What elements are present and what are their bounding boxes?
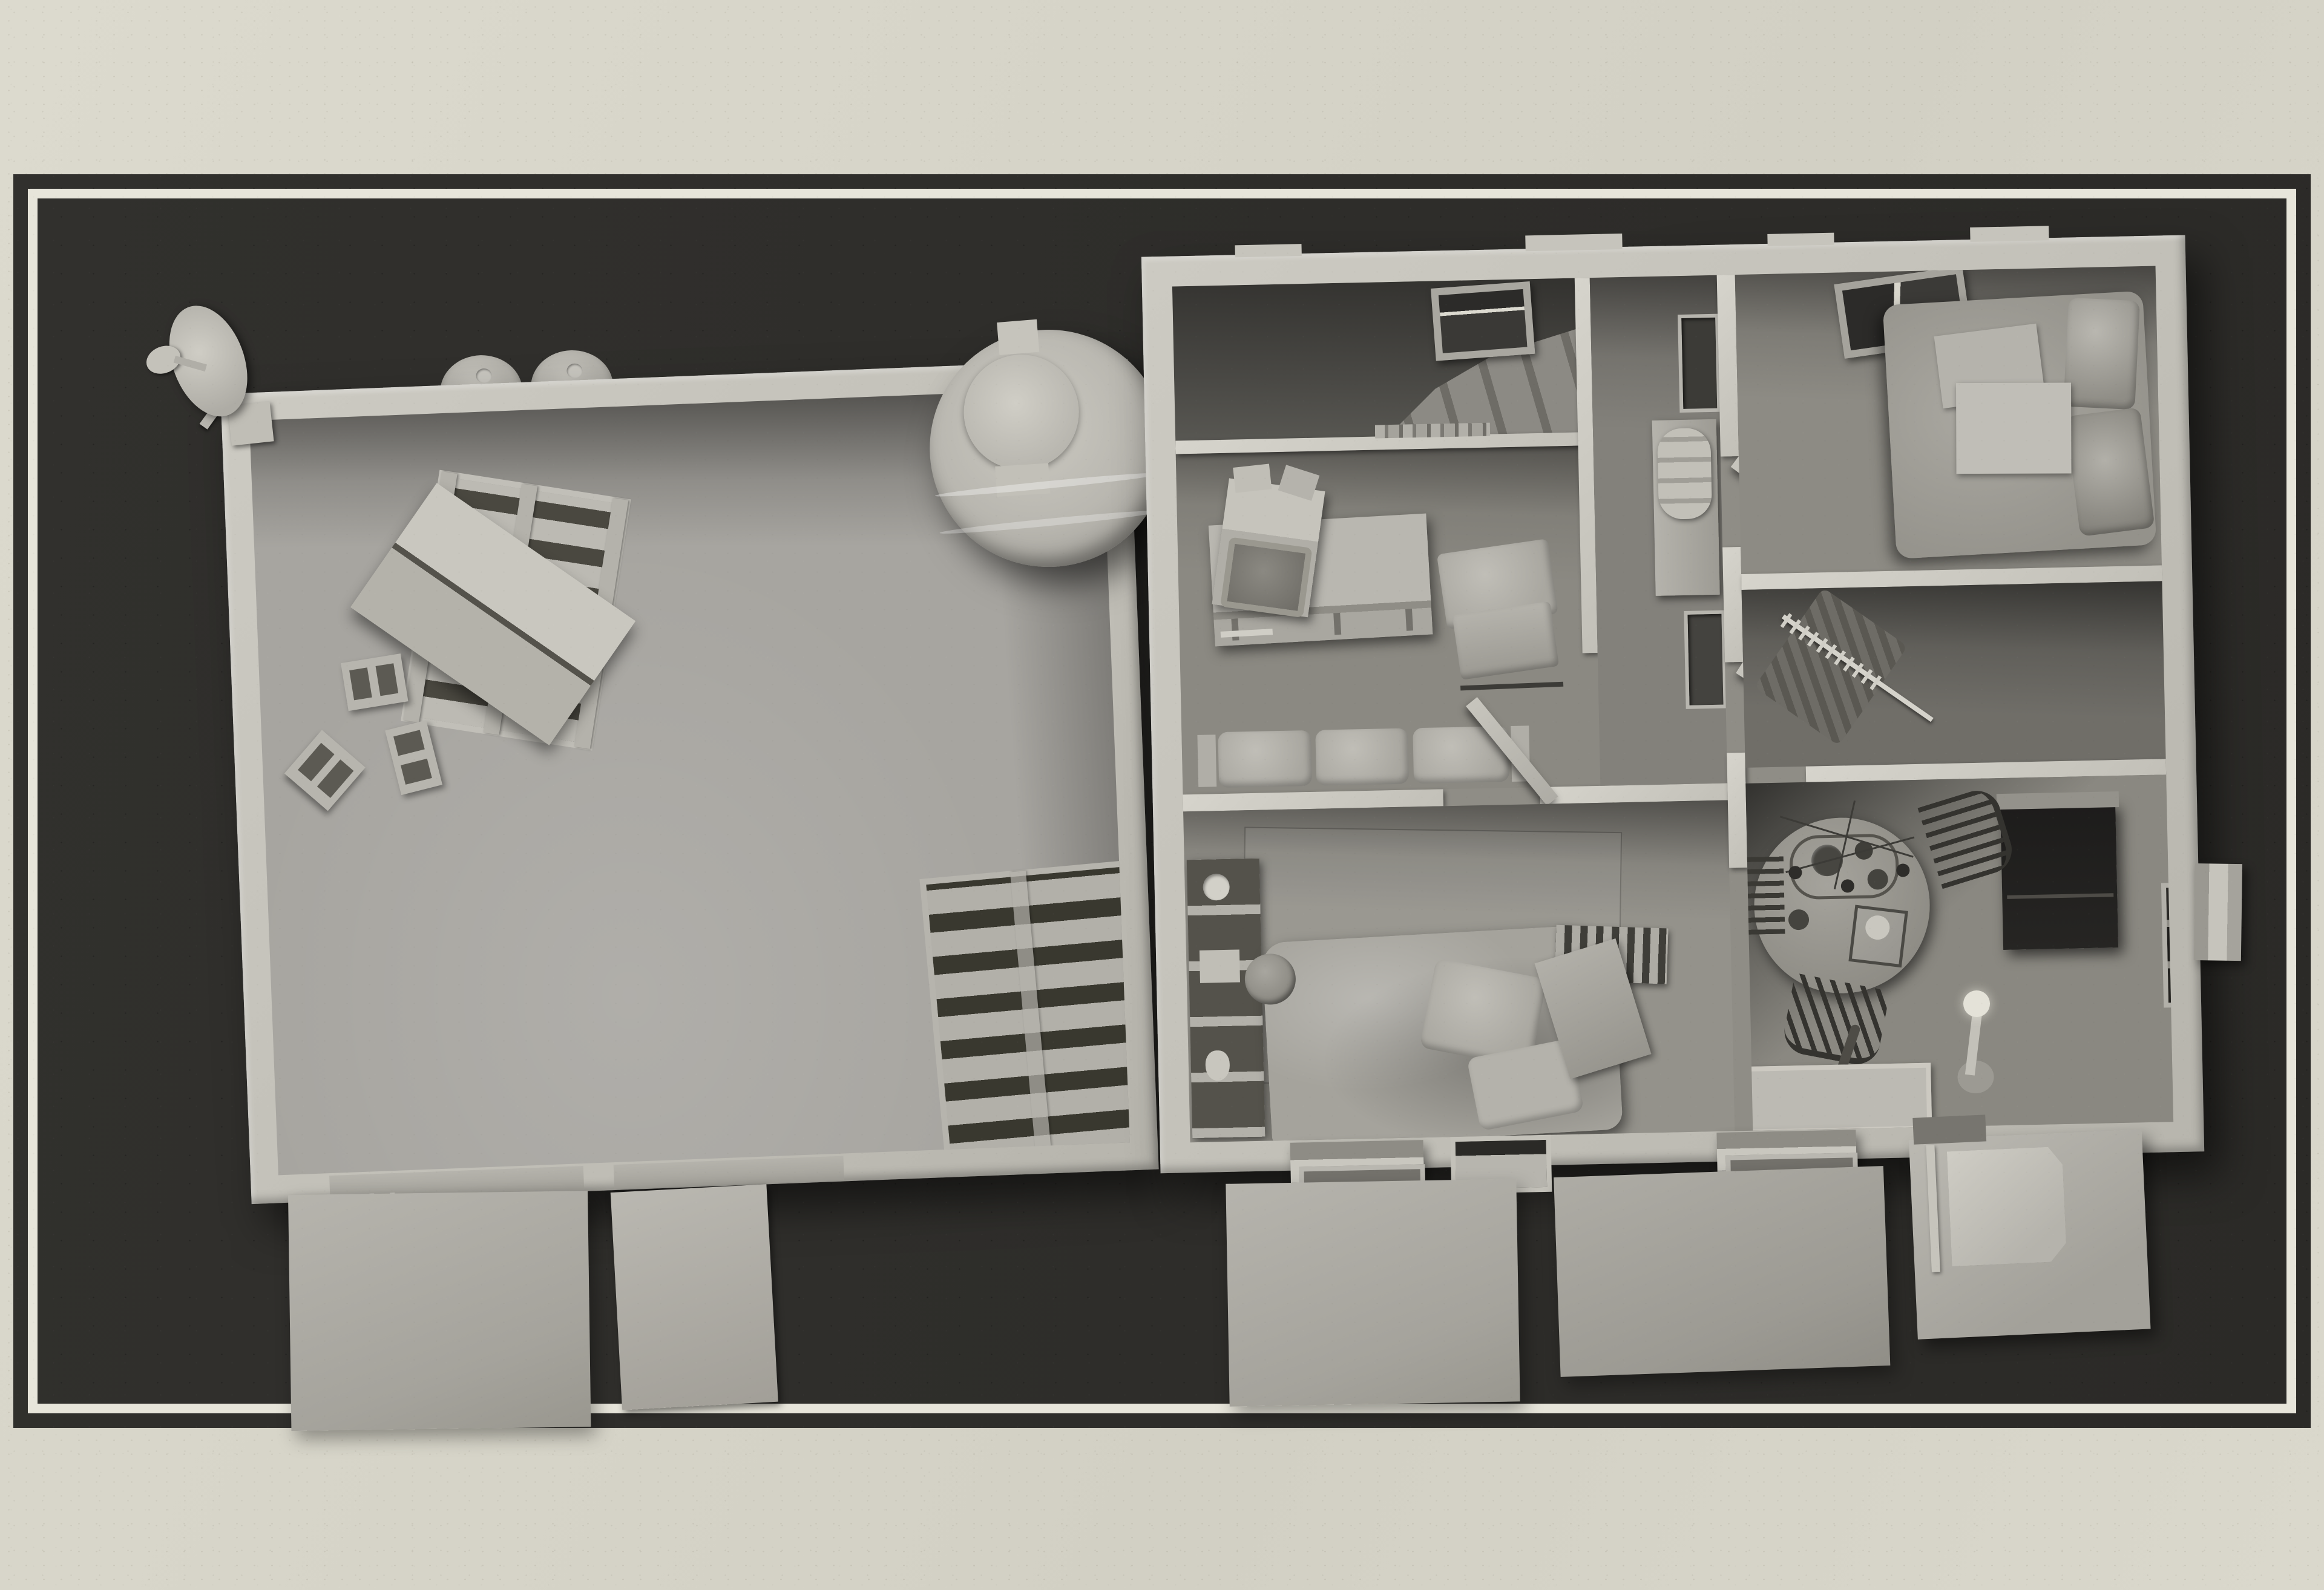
wardrobe-dark — [2000, 802, 2118, 950]
barrel-cap — [566, 363, 583, 378]
model-scene — [0, 0, 2324, 1590]
armchair — [1437, 538, 1566, 683]
hall-dresser — [1652, 419, 1720, 596]
kids-room-floor — [1183, 800, 1735, 1143]
wall-tab — [1767, 233, 1834, 246]
satellite-dish-icon — [154, 299, 317, 463]
sofa — [1218, 726, 1509, 788]
teacup — [1788, 909, 1810, 931]
leaning-pallet — [919, 859, 1130, 1174]
crt-tv — [1212, 478, 1325, 617]
corridor-floor — [1590, 275, 1728, 786]
barrel-cap — [476, 368, 492, 383]
porch-railing — [1926, 1145, 1940, 1272]
window-canopy — [2194, 863, 2242, 961]
entry-tray — [1745, 1063, 1932, 1131]
floor-lamp — [1950, 990, 2001, 1094]
closet-floor — [1742, 581, 2166, 767]
hanging-clothes — [1754, 587, 1908, 745]
bedroom-floor — [1735, 266, 2162, 574]
porch-hatch — [1912, 1114, 1986, 1144]
porch — [1909, 1130, 2151, 1340]
house-interior — [1172, 266, 2173, 1143]
pallet-runner — [1010, 871, 1052, 1165]
wall-tab — [1525, 234, 1623, 251]
candle-box — [1848, 905, 1908, 967]
house-building — [1141, 235, 2204, 1173]
niche-shelf — [1681, 318, 1717, 409]
ground-mat — [288, 1191, 591, 1431]
clock-icon — [1203, 874, 1230, 901]
rolled-quilt — [1657, 428, 1712, 520]
ground-mat — [1554, 1166, 1890, 1377]
cinder-block — [284, 730, 366, 811]
niche-shelf — [1687, 614, 1723, 705]
paper-background — [0, 0, 2324, 1590]
skylight-window — [1431, 281, 1535, 361]
pear-ornament — [1205, 1050, 1230, 1081]
door-ramp — [611, 1184, 778, 1410]
dining-chair — [1745, 856, 1785, 935]
chandelier — [1776, 798, 1918, 910]
box-small — [1200, 949, 1240, 983]
wall-tab — [1235, 244, 1301, 257]
double-bed — [1883, 291, 2157, 559]
entry-step-unit — [1947, 1147, 2067, 1266]
interior-wall-main — [1722, 547, 1743, 662]
wall-tab — [1970, 226, 2049, 242]
ground-mat — [1226, 1179, 1520, 1406]
books-row — [1375, 423, 1490, 439]
cinder-block — [341, 653, 409, 711]
cinder-block — [385, 720, 442, 795]
side-window — [2161, 882, 2173, 1007]
interior-wall-main — [1727, 753, 1747, 868]
dining-room-floor — [1745, 774, 2173, 1130]
